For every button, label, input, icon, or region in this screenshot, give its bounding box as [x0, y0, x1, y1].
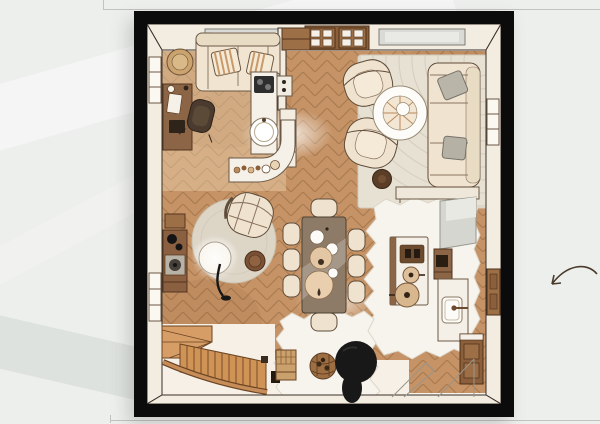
floor-plan-drawing [147, 24, 501, 404]
stove-sideboard [163, 214, 187, 292]
striped-pillow-1 [211, 48, 241, 77]
wall-background [0, 0, 600, 424]
lounge-side-table [245, 251, 265, 271]
round-sink [250, 118, 278, 146]
wall-seam-corner-top [103, 0, 104, 9]
wall-seam-bottom [110, 420, 600, 421]
kitchen-island [389, 237, 428, 307]
plant-side-table [373, 170, 392, 189]
top-double-door [305, 26, 369, 50]
right-window [487, 99, 499, 145]
left-window-lower [149, 273, 161, 321]
grey-pillow-2 [442, 136, 467, 160]
office-desk [163, 84, 192, 150]
counter-with-sink [438, 279, 468, 341]
living-sofa [428, 63, 480, 187]
storage-crate [276, 350, 296, 380]
tall-grey-cabinet [440, 197, 476, 249]
dining-table [302, 217, 346, 313]
log-basket [310, 353, 336, 379]
bottom-right-cabinet [460, 334, 483, 384]
left-window-upper [149, 57, 161, 103]
hand-drawn-arrow [543, 258, 599, 296]
wall-seam-top [103, 9, 600, 10]
top-window-right [379, 29, 465, 45]
wall-cabinet [434, 249, 452, 279]
office-side-table [167, 49, 193, 75]
spiral-coffee-table [373, 86, 427, 140]
right-door [487, 269, 500, 315]
black-picture-frame [134, 11, 514, 417]
pouf [191, 234, 239, 282]
wall-seam-corner-bottom [110, 415, 111, 423]
